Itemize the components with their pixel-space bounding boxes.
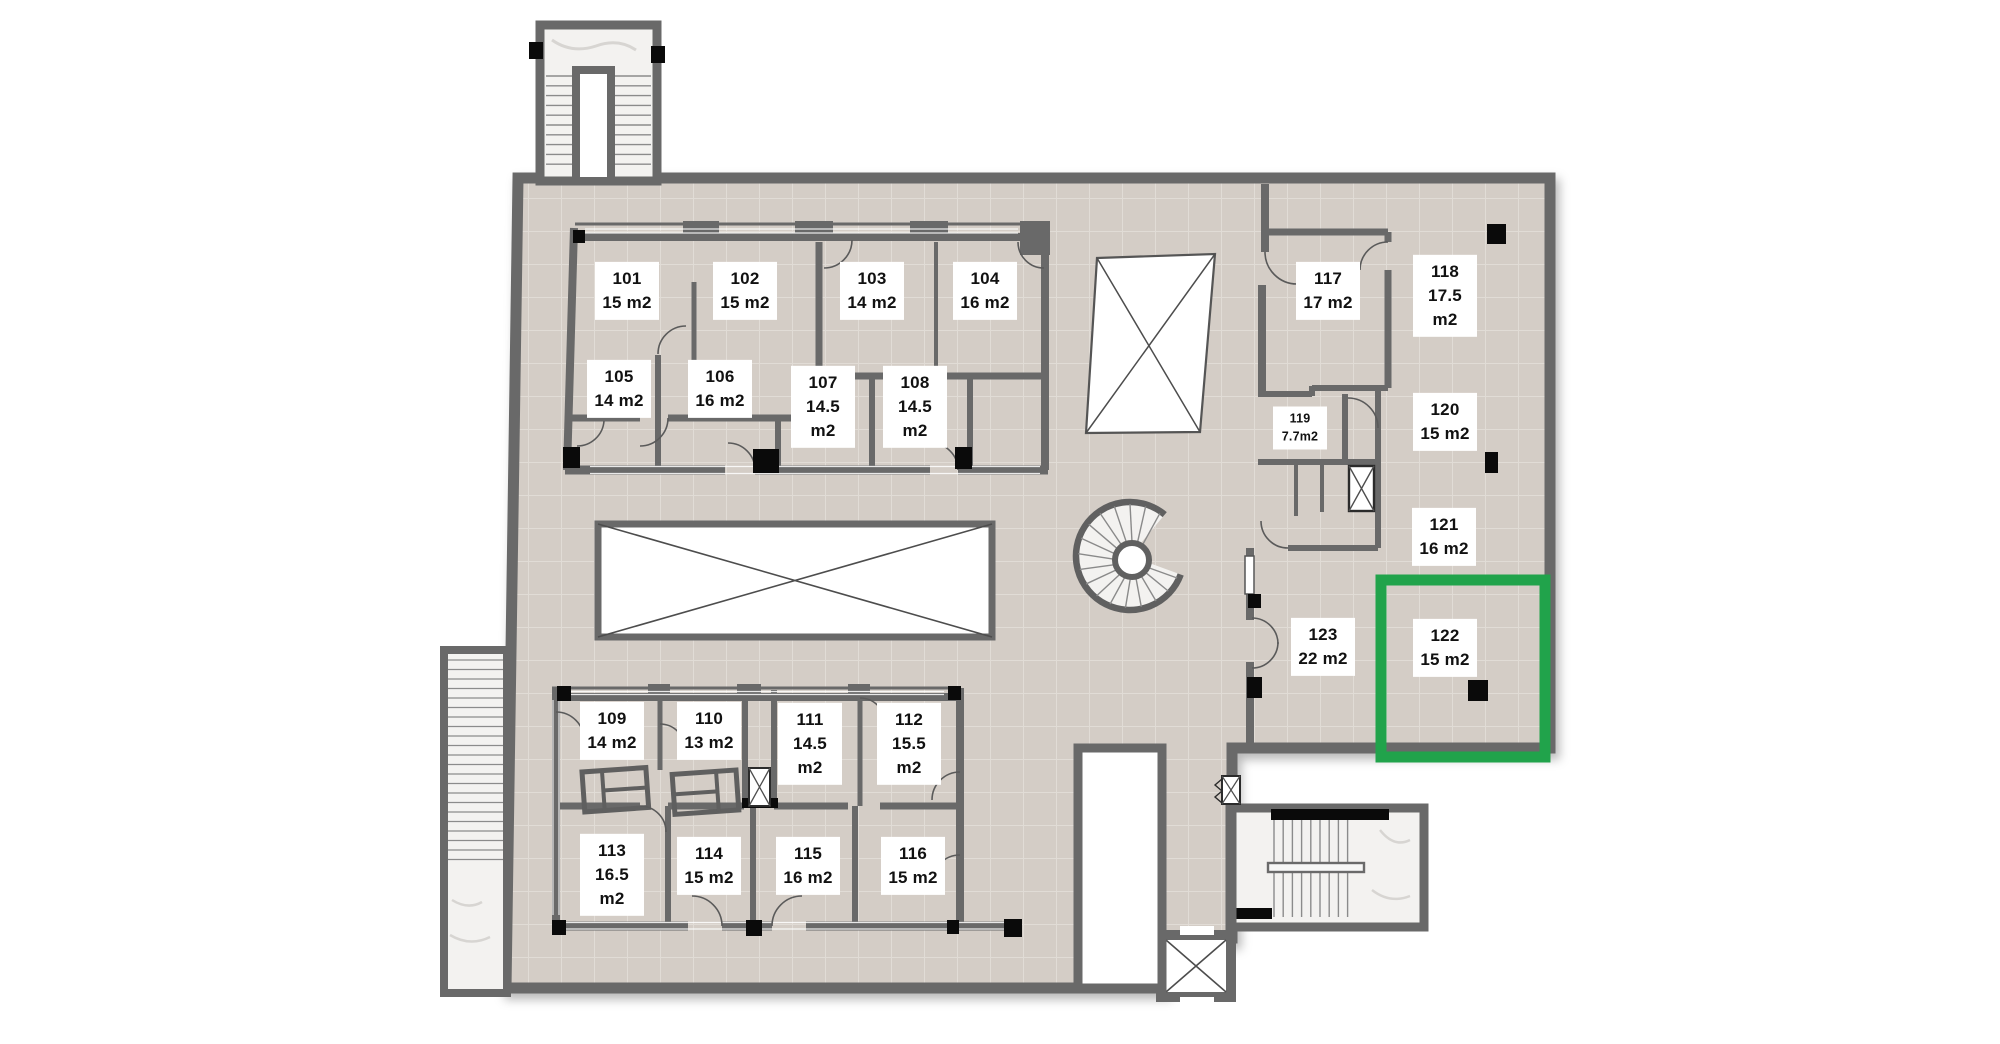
room-label-110[interactable]: 11013 m2 bbox=[677, 702, 741, 760]
room-area: 14 m2 bbox=[582, 731, 642, 755]
room-label-120[interactable]: 12015 m2 bbox=[1413, 393, 1477, 451]
room-label-123[interactable]: 12322 m2 bbox=[1291, 618, 1355, 676]
room-number: 113 bbox=[582, 839, 642, 863]
room-number: 108 bbox=[885, 371, 945, 395]
room-number: 114 bbox=[679, 842, 739, 866]
room-area: 15 m2 bbox=[1415, 648, 1475, 672]
room-label-113[interactable]: 11316.5 m2 bbox=[580, 834, 644, 916]
room-area: 16 m2 bbox=[1414, 537, 1474, 561]
room-number: 115 bbox=[778, 842, 838, 866]
room-label-103[interactable]: 10314 m2 bbox=[840, 262, 904, 320]
room-number: 106 bbox=[690, 365, 750, 389]
room-area: 17 m2 bbox=[1298, 291, 1358, 315]
room-number: 105 bbox=[589, 365, 649, 389]
room-number: 110 bbox=[679, 707, 739, 731]
room-label-109[interactable]: 10914 m2 bbox=[580, 702, 644, 760]
room-number: 111 bbox=[780, 708, 840, 732]
room-number: 123 bbox=[1293, 623, 1353, 647]
floor-plan-drawing bbox=[0, 0, 2000, 1044]
room-label-101[interactable]: 10115 m2 bbox=[595, 262, 659, 320]
stair-landing-edge bbox=[1232, 908, 1272, 919]
room-area: 17.5 m2 bbox=[1415, 284, 1475, 332]
room-label-116[interactable]: 11615 m2 bbox=[881, 837, 945, 895]
room-label-114[interactable]: 11415 m2 bbox=[677, 837, 741, 895]
room-label-118[interactable]: 11817.5 m2 bbox=[1413, 255, 1477, 337]
stair-void bbox=[576, 70, 611, 181]
room-label-122[interactable]: 12215 m2 bbox=[1413, 619, 1477, 677]
room-area: 15 m2 bbox=[883, 866, 943, 890]
room-number: 107 bbox=[793, 371, 853, 395]
room-area: 15 m2 bbox=[1415, 422, 1475, 446]
room-area: 15 m2 bbox=[715, 291, 775, 315]
column bbox=[529, 42, 543, 59]
stair-mid-rail bbox=[1268, 863, 1364, 872]
room-number: 104 bbox=[955, 267, 1015, 291]
room-number: 101 bbox=[597, 267, 657, 291]
room-number: 117 bbox=[1298, 267, 1358, 291]
room-area: 16 m2 bbox=[955, 291, 1015, 315]
room-number: 116 bbox=[883, 842, 943, 866]
room-area: 15 m2 bbox=[597, 291, 657, 315]
room-number: 118 bbox=[1415, 260, 1475, 284]
room-number: 109 bbox=[582, 707, 642, 731]
room-area: 16 m2 bbox=[778, 866, 838, 890]
room-label-104[interactable]: 10416 m2 bbox=[953, 262, 1017, 320]
room-label-105[interactable]: 10514 m2 bbox=[587, 360, 651, 418]
stair-landing-edge bbox=[1271, 809, 1389, 820]
room-label-111[interactable]: 11114.5 m2 bbox=[778, 703, 842, 785]
room-number: 112 bbox=[879, 708, 939, 732]
wall-window bbox=[1245, 556, 1254, 594]
bottom-elevator bbox=[1156, 926, 1236, 1006]
room-label-102[interactable]: 10215 m2 bbox=[713, 262, 777, 320]
room-label-112[interactable]: 11215.5 m2 bbox=[877, 703, 941, 785]
room-number: 102 bbox=[715, 267, 775, 291]
room-number: 119 bbox=[1274, 411, 1326, 429]
room-label-117[interactable]: 11717 m2 bbox=[1296, 262, 1360, 320]
room-area: 14 m2 bbox=[589, 389, 649, 413]
room-number: 103 bbox=[842, 267, 902, 291]
room-area: 16.5 m2 bbox=[582, 863, 642, 911]
room-area: 7.7m2 bbox=[1274, 428, 1326, 446]
room-number: 121 bbox=[1414, 513, 1474, 537]
room-area: 15 m2 bbox=[679, 866, 739, 890]
room-label-119[interactable]: 1197.7m2 bbox=[1273, 407, 1327, 450]
bottom-left-staircase bbox=[444, 650, 507, 993]
room-number: 122 bbox=[1415, 624, 1475, 648]
room-area: 22 m2 bbox=[1293, 647, 1353, 671]
room-label-121[interactable]: 12116 m2 bbox=[1412, 508, 1476, 566]
room-number: 120 bbox=[1415, 398, 1475, 422]
top-left-staircase bbox=[529, 25, 665, 181]
room-area: 14 m2 bbox=[842, 291, 902, 315]
room-label-108[interactable]: 10814.5 m2 bbox=[883, 366, 947, 448]
central-void bbox=[598, 524, 992, 637]
room-area: 14.5 m2 bbox=[885, 395, 945, 443]
room-area: 13 m2 bbox=[679, 731, 739, 755]
bottom-right-stairwell bbox=[1230, 808, 1424, 927]
room-area: 14.5 m2 bbox=[793, 395, 853, 443]
corridor-void bbox=[1078, 748, 1162, 988]
floor-plan-stage: 10115 m210215 m210314 m210416 m210514 m2… bbox=[0, 0, 2000, 1044]
room-area: 14.5 m2 bbox=[780, 732, 840, 780]
room-area: 16 m2 bbox=[690, 389, 750, 413]
service-elevator bbox=[1349, 466, 1374, 511]
room-label-106[interactable]: 10616 m2 bbox=[688, 360, 752, 418]
room-area: 15.5 m2 bbox=[879, 732, 939, 780]
column bbox=[651, 46, 665, 63]
room-label-115[interactable]: 11516 m2 bbox=[776, 837, 840, 895]
room-label-107[interactable]: 10714.5 m2 bbox=[791, 366, 855, 448]
upper-void bbox=[1086, 254, 1215, 433]
